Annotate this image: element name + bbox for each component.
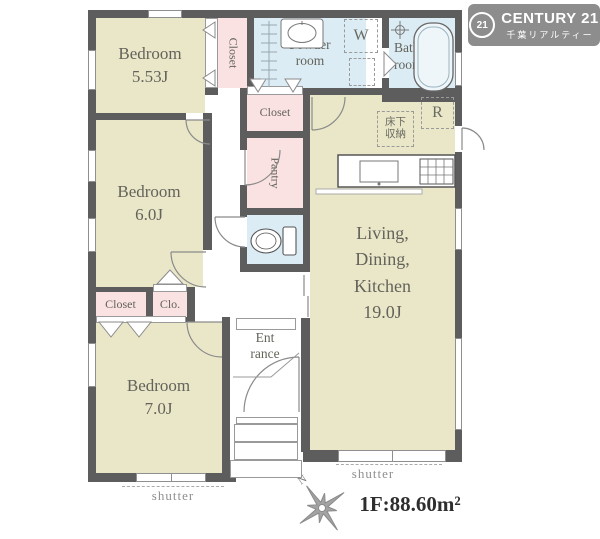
entrance-label-2: rance [250,346,279,362]
room-bedroom-7: Bedroom 7.0J [95,322,222,473]
washer-label: W [353,27,368,45]
ldk-label-2: Dining, [355,246,410,272]
wall-corridor-stub [205,88,218,95]
bedroom1-size: 5.53J [132,66,168,89]
window-ldk-right-2 [455,338,462,430]
window-ldk-right-1 [455,208,462,250]
wall-powder-bath-upper [382,18,389,48]
closet-mid-door-track [247,86,303,95]
porch-step-3 [230,460,302,478]
door-arc-toilet [215,217,245,247]
closet-small-door-track [153,284,187,292]
door-arc-ldk-exterior [462,128,484,150]
underfloor-storage-label: 床下収納 [384,117,407,141]
porch-step-2 [234,442,298,460]
wall-bed3-east [222,317,230,482]
sliding-door-gap [301,272,310,318]
room-bedroom-6: Bedroom 6.0J [95,120,203,287]
shutter-dash-left [122,486,224,487]
logo-text-block: CENTURY 21 千葉リアルティー [501,10,599,41]
wall-closettop-powder [247,18,254,88]
logo-21-badge: 21 [469,12,495,38]
ldk-size: 19.0J [363,299,402,325]
wall-clo-east [187,287,195,322]
powder-label-2: room [296,53,325,69]
logo-brand-name: CENTURY 21 [501,10,599,27]
wall-ldk-top [303,88,455,95]
closet-west-door-track [96,316,186,323]
window-bed2-left-1 [88,150,96,182]
fridge-box: R [421,97,454,129]
entrance-label-1: Ent [256,330,275,346]
underfloor-storage-box: 床下収納 [377,111,414,147]
bedroom2-size: 6.0J [135,204,163,227]
bedroom3-size: 7.0J [145,398,173,421]
closet-top-label: Closet [226,38,239,69]
pantry-label: Pantry [268,157,281,188]
closet-small-label: Clo. [160,298,180,311]
room-bath: Bath room [389,18,455,95]
fridge-label: R [432,104,443,122]
wall-mid-west-a [240,88,247,150]
bedroom3-name: Bedroom [127,375,190,398]
window-bed1-top [148,10,182,18]
door-gap-ldk-right [455,126,462,152]
window-bath-right [455,52,462,86]
washer-box: W [344,19,378,53]
shoe-cabinet [236,318,296,330]
shutter-label-left: shutter [122,488,224,504]
bath-label-2: room [394,57,423,73]
room-toilet [247,215,303,264]
shutter-label-right: shutter [318,466,428,482]
wall-entrance-east [301,318,310,452]
room-closet-top: Closet [218,18,247,88]
wall-ldk-west [303,88,310,272]
room-ldk: Living, Dining, Kitchen 19.0J [310,95,455,450]
wall-bed2-east [203,113,212,250]
wall-closetmid-bottom [240,131,310,138]
room-pantry: Pantry [247,138,303,208]
floor-area-label: 1F:88.60m² [352,492,468,517]
laundry-basket-box [349,58,375,86]
porch-step-1 [234,424,298,442]
shutter-dash-right [336,464,442,465]
bath-label-1: Bath [394,40,420,56]
room-closet-west: Closet [95,292,146,317]
room-closet-mid: Closet [247,95,303,131]
window-ldk-bottom [338,450,446,462]
wall-closet-divider [146,292,153,317]
closet-west-label: Closet [105,298,136,311]
ldk-label-3: Kitchen [354,273,411,299]
closet-mid-label: Closet [260,106,291,119]
logo-subtitle: 千葉リアルティー [506,28,593,41]
wall-pantry-bottom [240,208,310,215]
floor-plan: Bedroom 5.53J Closet Powder room Bath ro… [0,0,600,539]
ldk-label-1: Living, [356,220,409,246]
room-bedroom-5-53: Bedroom 5.53J [95,18,205,113]
entrance-door-leaf [236,417,298,424]
room-closet-small: Clo. [153,292,187,317]
window-bed3-left [88,343,96,387]
closet-top-door-track [205,18,218,88]
window-bed3-bottom [136,473,206,482]
wall-toilet-bottom [240,264,310,272]
century21-logo: 21 CENTURY 21 千葉リアルティー [468,4,600,46]
wall-bed1-bottom [88,113,186,120]
powder-label-1: Powder [289,37,330,53]
window-bed2-left-2 [88,218,96,252]
window-bed1-left [88,50,96,90]
wall-top [88,10,462,18]
bedroom1-name: Bedroom [118,43,181,66]
bedroom2-name: Bedroom [117,181,180,204]
